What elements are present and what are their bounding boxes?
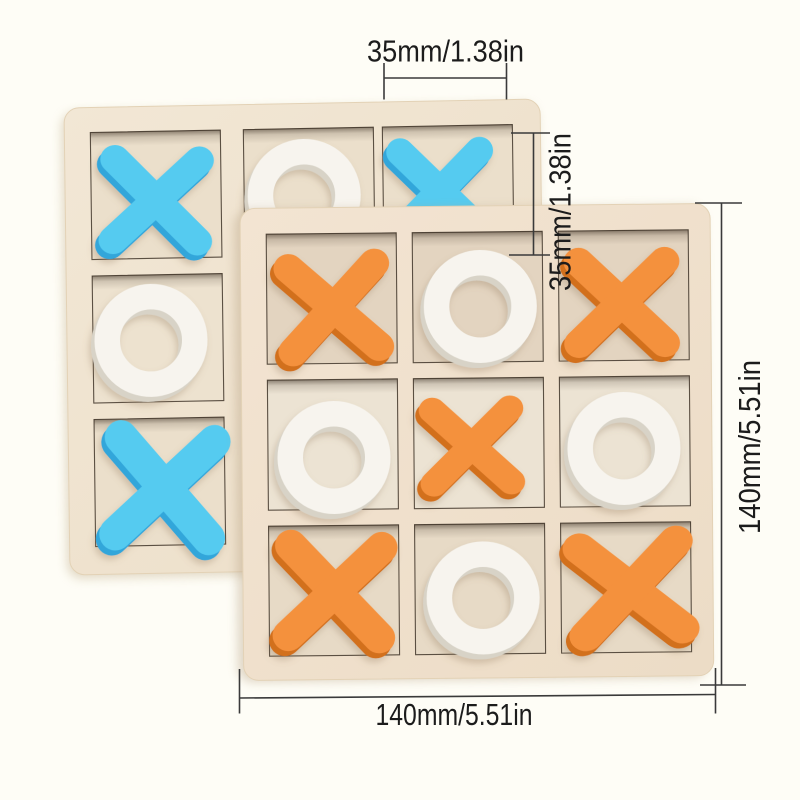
svg-text:140mm/5.51in: 140mm/5.51in [732,360,767,534]
svg-text:35mm/1.38in: 35mm/1.38in [543,133,578,291]
svg-text:35mm/1.38in: 35mm/1.38in [367,34,524,69]
svg-text:140mm/5.51in: 140mm/5.51in [376,697,533,732]
